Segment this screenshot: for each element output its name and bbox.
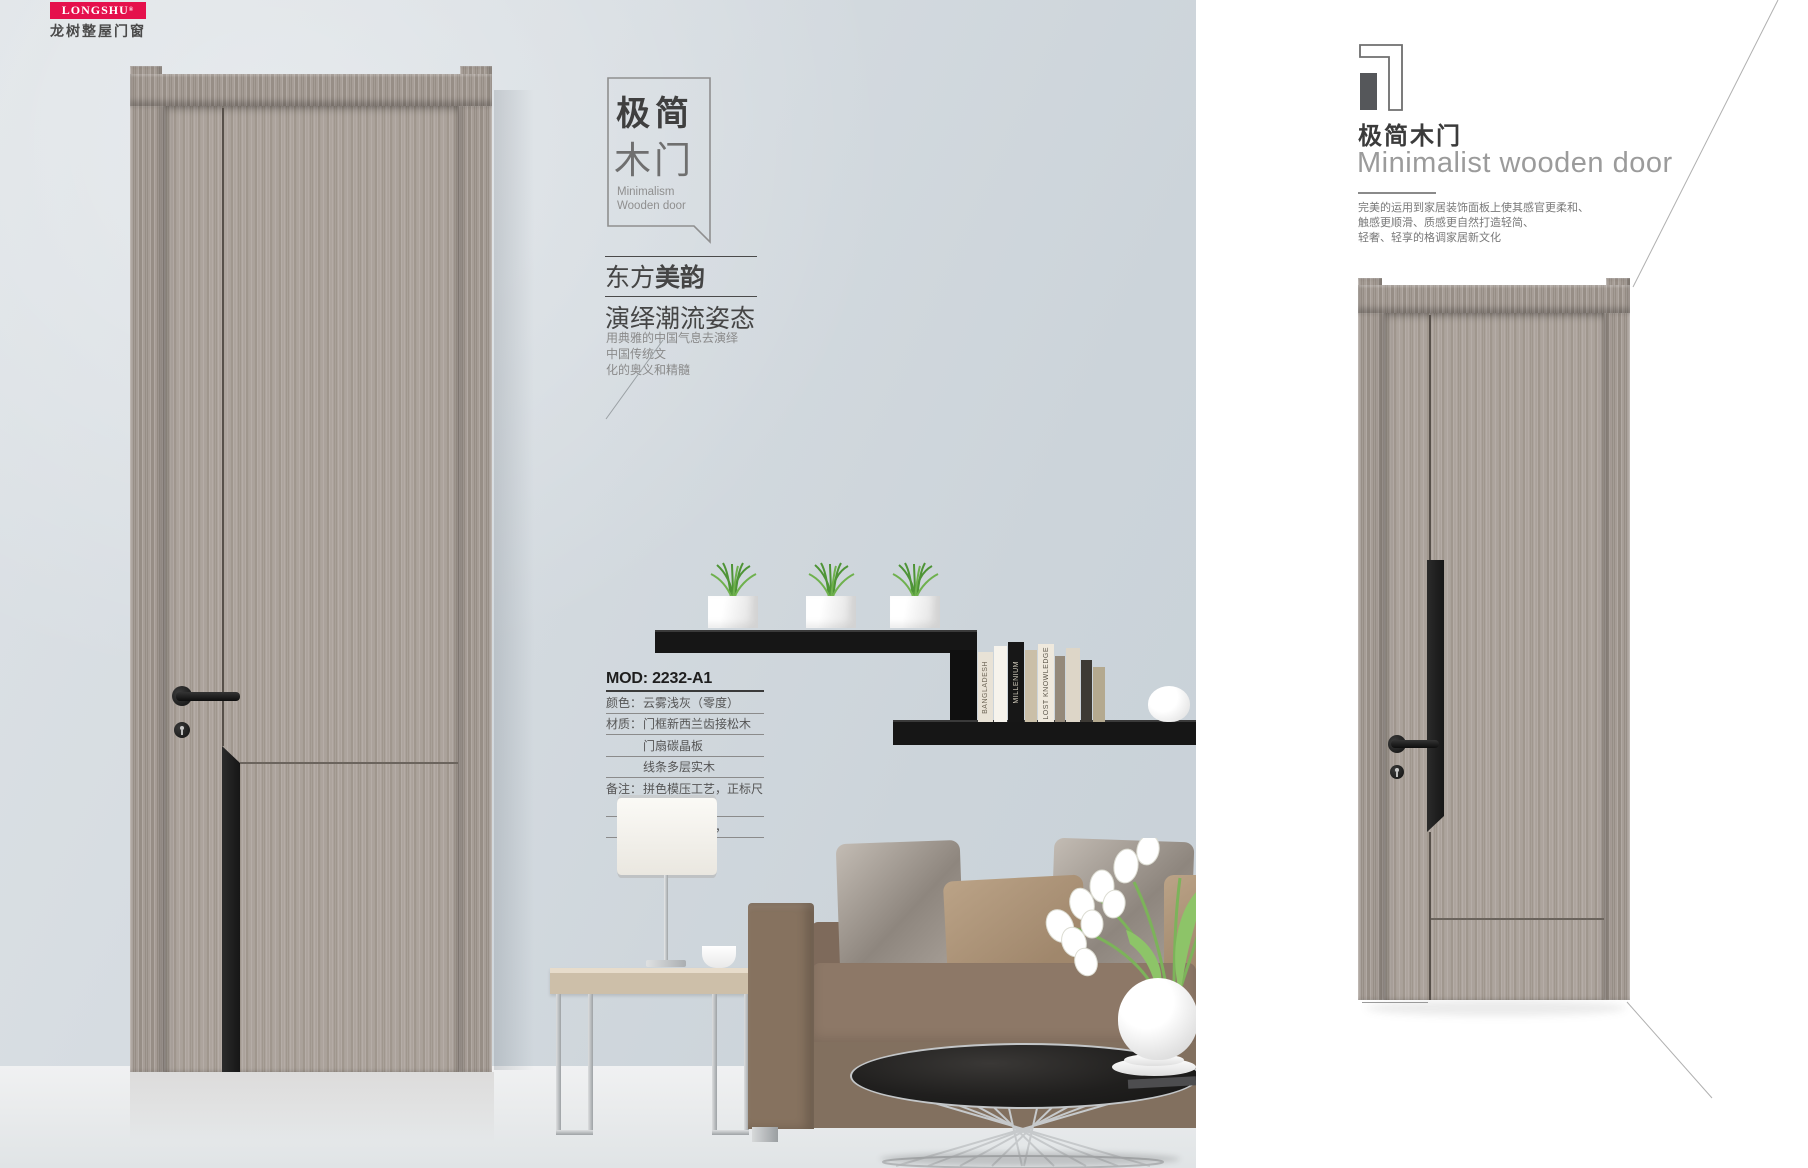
side-table-leg — [556, 994, 561, 1134]
book-spine: BANGLADESH — [978, 652, 993, 722]
keyhole-slot-icon — [181, 730, 183, 735]
book-spine: MILLENIUM — [1008, 642, 1024, 722]
door-wall-shadow — [494, 90, 534, 1070]
slogan-line1-regular: 东方 — [605, 264, 655, 292]
door-groove-horizontal — [1431, 918, 1604, 920]
planter-cube — [890, 596, 940, 628]
grass-plant-icon — [705, 562, 761, 598]
brand-logo: LONGSHU® — [50, 2, 146, 19]
spec-row: 门扇碳晶板 — [606, 735, 764, 757]
grass-plant-icon — [803, 562, 859, 598]
door-frame-lintel — [130, 74, 492, 106]
door-black-stripe — [222, 746, 240, 1072]
coffee-cup — [702, 946, 736, 968]
side-table-leg — [588, 994, 593, 1134]
spec-label: 颜色： — [606, 694, 643, 711]
right-description-line2: 触感更顺滑、质感更自然打造轻简、 — [1358, 216, 1589, 231]
door-handle-lever — [176, 692, 240, 701]
numeral-fill — [1360, 73, 1377, 110]
door-photo-2232 — [128, 64, 494, 1074]
book-title: LOST KNOWLEDGE — [1043, 647, 1050, 720]
book-spine: LOST KNOWLEDGE — [1038, 644, 1054, 722]
section-number-glyph: 1 — [1356, 40, 1412, 116]
planter-cube — [708, 596, 758, 628]
spec-label — [606, 758, 643, 775]
right-page: 1 极简木门 Minimalist wooden door 完美的运用到家居装饰… — [1196, 0, 1808, 1168]
spec-label — [606, 737, 643, 754]
right-heading-rule — [1358, 192, 1436, 194]
door-photo-2231 — [1356, 276, 1632, 1002]
book-spine — [1093, 667, 1105, 722]
right-description-line3: 轻奢、轻享的格调家居新文化 — [1358, 231, 1589, 246]
book-spine — [1025, 650, 1037, 722]
right-heading-cn: 极简木门 — [1358, 116, 1462, 151]
door-frame-jamb-right — [1604, 313, 1630, 1000]
door-frame-jamb-left — [1358, 313, 1384, 1000]
door-groove-vertical-upper — [1429, 315, 1431, 560]
right-description: 完美的运用到家居装饰面板上使其感官更柔和、 触感更顺滑、质感更自然打造轻简、 轻… — [1358, 201, 1589, 246]
wall-shelf-upper — [655, 630, 977, 653]
title-box-en: Minimalism Wooden door — [617, 185, 686, 213]
book-spine — [1081, 660, 1092, 722]
table-lamp-shade — [617, 795, 717, 878]
table-lamp-base — [646, 960, 686, 967]
title-box-en-line1: Minimalism — [617, 185, 686, 199]
title-box-cn-line1: 极简 — [616, 86, 694, 135]
door-floor-reflection — [130, 1072, 494, 1142]
book-title: BANGLADESH — [982, 661, 989, 714]
catalog-spread: LONGSHU® 龙树整屋门窗 极简 木门 — [0, 0, 1808, 1168]
coffee-table-shadow — [880, 1152, 1180, 1166]
side-table-leg — [712, 994, 717, 1134]
table-lamp-stem — [664, 875, 668, 963]
planter-cube — [806, 596, 856, 628]
small-vase — [1148, 686, 1190, 722]
registered-mark-icon: ® — [129, 7, 134, 13]
wall-shelf-lower — [893, 720, 1196, 745]
slogan-block: 东方美韵 演绎潮流姿态 — [605, 256, 757, 335]
door-lock-escutcheon — [1390, 765, 1404, 779]
brand-logo-subtext: 龙树整屋门窗 — [50, 21, 146, 41]
slogan-line1-bold: 美韵 — [655, 264, 705, 292]
book-spine — [994, 646, 1007, 722]
door-groove-vertical — [222, 108, 224, 746]
sofa-leg — [752, 1127, 778, 1142]
model-number: MOD: 2232-A1 — [606, 670, 764, 692]
door-handle-lever — [1391, 740, 1439, 748]
title-box-en-line2: Wooden door — [617, 199, 686, 213]
spec-value: 云雾浅灰（零度） — [643, 694, 739, 711]
door-groove-vertical-lower — [1429, 832, 1431, 1000]
door-lock-escutcheon — [174, 722, 190, 738]
spec-row: 颜色：云雾浅灰（零度） — [606, 692, 764, 714]
spec-value: 门框新西兰齿接松木 — [643, 715, 751, 732]
book-spine — [1055, 656, 1065, 722]
spec-top-rule — [1362, 1002, 1428, 1003]
spec-value: 线条多层实木 — [643, 758, 715, 775]
book-spine — [1066, 648, 1080, 722]
grass-plant-icon — [887, 562, 943, 598]
right-heading-en: Minimalist wooden door — [1357, 147, 1673, 180]
keyhole-slot-icon — [1396, 772, 1398, 777]
tulip-bouquet — [1030, 838, 1196, 998]
slogan-line1: 东方美韵 — [605, 257, 757, 296]
book-title: MILLENIUM — [1013, 661, 1020, 704]
decorative-diagonal-line — [600, 335, 670, 425]
door-frame-jamb-right — [458, 106, 492, 1072]
door-slab — [1384, 313, 1604, 1000]
spec-label: 材质： — [606, 715, 643, 732]
door-black-stripe — [1427, 560, 1444, 832]
door-slab — [164, 106, 458, 1072]
spec-value: 门扇碳晶板 — [643, 737, 703, 754]
door-frame-lintel — [1358, 285, 1630, 313]
side-table-runner — [556, 1130, 593, 1135]
side-table-top — [550, 968, 753, 994]
spec-row: 线条多层实木 — [606, 757, 764, 779]
book-row: BANGLADESH MILLENIUM LOST KNOWLEDGE — [978, 640, 1110, 722]
door-frame-jamb-left — [130, 106, 164, 1072]
wall-shelf-connector — [950, 650, 977, 722]
flower-vase — [1118, 978, 1196, 1060]
left-page: LONGSHU® 龙树整屋门窗 极简 木门 — [0, 0, 1196, 1168]
brand-logo-text: LONGSHU — [62, 3, 129, 17]
door-groove-horizontal — [240, 762, 458, 764]
sofa-armrest — [748, 903, 814, 1129]
right-description-line1: 完美的运用到家居装饰面板上使其感官更柔和、 — [1358, 201, 1589, 216]
title-box-cn-line2: 木门 — [614, 130, 694, 184]
side-table-runner — [712, 1130, 749, 1135]
spec-row: 材质：门框新西兰齿接松木 — [606, 714, 764, 736]
